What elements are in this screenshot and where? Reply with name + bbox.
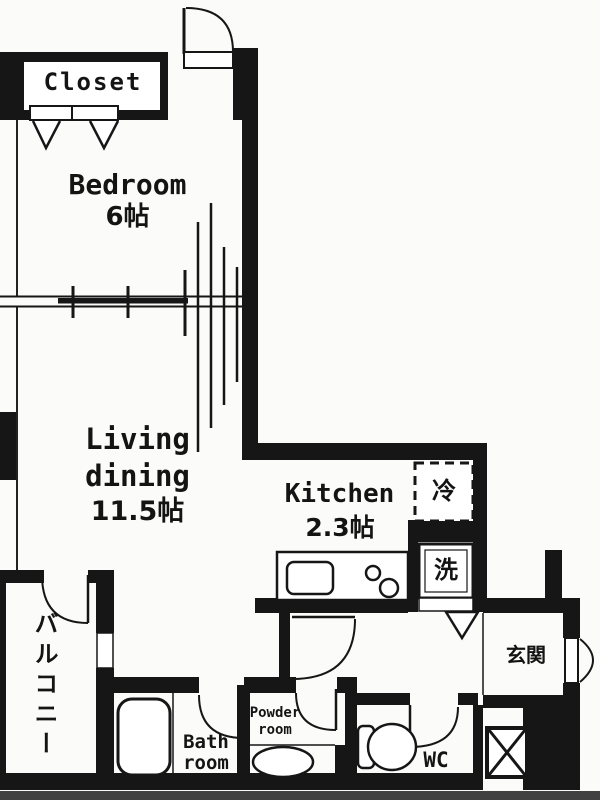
sliding-partition: [0, 203, 242, 452]
living-size: 11.5帖: [70, 498, 205, 526]
powder-sink: [250, 745, 335, 777]
bedroom-size: 6帖: [55, 204, 200, 231]
floor-plan-linework: [0, 0, 600, 800]
bathroom-label-line2: room: [176, 754, 236, 774]
bedroom-label: Bedroom: [55, 170, 200, 199]
pipe-shaft: [487, 728, 527, 777]
balcony-window: [97, 633, 113, 668]
photo-edge-strip: [0, 791, 600, 800]
refrigerator-label: 冷: [415, 479, 473, 504]
closet-label: Closet: [28, 70, 158, 95]
kitchen-counter: [277, 552, 408, 600]
kitchen-label: Kitchen: [277, 481, 402, 508]
hallway-door: [292, 617, 355, 679]
powder-room-label-line2: room: [246, 723, 304, 738]
living-label-line2: dining: [75, 461, 200, 491]
walls: [0, 48, 580, 790]
living-label-line1: Living: [75, 424, 200, 454]
bathtub: [118, 687, 173, 775]
washer-label: 洗: [419, 558, 473, 583]
balcony-label: バルコニー: [16, 600, 56, 772]
floor-plan: Closet Bedroom 6帖 Living dining 11.5帖 Ki…: [0, 0, 600, 800]
wc-label: WC: [406, 749, 466, 771]
wc-door: [410, 705, 458, 747]
kitchen-size: 2.3帖: [285, 515, 395, 541]
top-door: [184, 8, 233, 68]
powder-room-label-line1: Powder: [246, 706, 304, 721]
entrance-label: 玄関: [487, 645, 565, 666]
bathroom-label-line1: Bath: [176, 733, 236, 753]
